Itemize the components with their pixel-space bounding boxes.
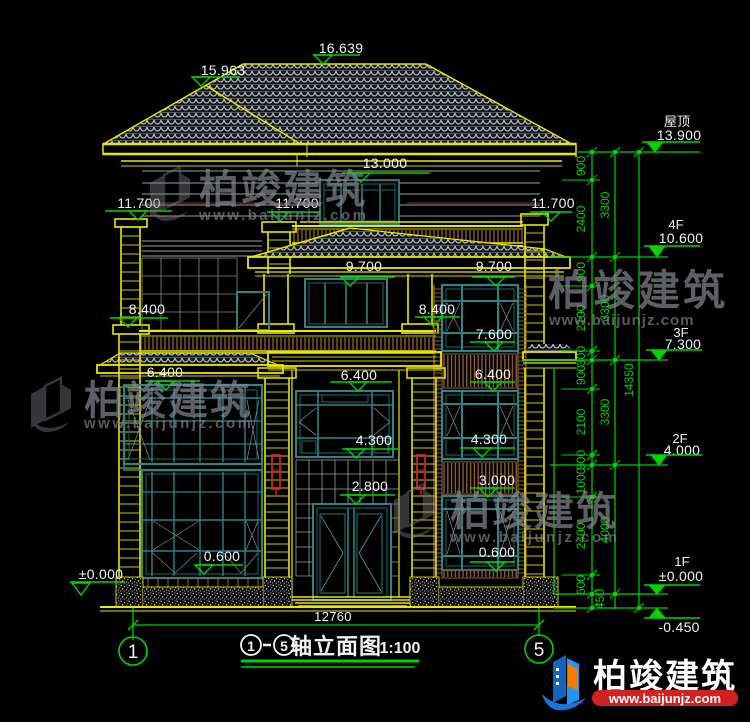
svg-text:15.963: 15.963 bbox=[201, 62, 246, 78]
svg-text:9.700: 9.700 bbox=[346, 258, 383, 274]
svg-text:16.639: 16.639 bbox=[319, 40, 364, 56]
svg-text:4.300: 4.300 bbox=[471, 431, 508, 447]
svg-text:3300: 3300 bbox=[598, 398, 612, 425]
svg-text:柏竣建筑: 柏竣建筑 bbox=[450, 490, 618, 534]
svg-text:柏竣建筑: 柏竣建筑 bbox=[199, 168, 367, 212]
svg-text:轴立面图: 轴立面图 bbox=[290, 634, 382, 659]
svg-text:1: 1 bbox=[128, 642, 139, 663]
svg-text:柏竣建筑: 柏竣建筑 bbox=[548, 267, 728, 314]
svg-text:6.400: 6.400 bbox=[341, 367, 378, 383]
svg-text:450: 450 bbox=[593, 589, 607, 609]
svg-text:3300: 3300 bbox=[598, 191, 612, 218]
svg-text:13.000: 13.000 bbox=[363, 155, 408, 171]
svg-text:6.400: 6.400 bbox=[475, 366, 512, 382]
svg-text:±0.000: ±0.000 bbox=[659, 568, 704, 584]
svg-text:www.baijunjz.com: www.baijunjz.com bbox=[83, 415, 253, 432]
svg-text:10.600: 10.600 bbox=[659, 230, 704, 246]
svg-text:5: 5 bbox=[280, 638, 288, 654]
svg-text:www.baijunjz.com: www.baijunjz.com bbox=[449, 529, 619, 546]
svg-text:13.900: 13.900 bbox=[657, 127, 702, 143]
svg-text:3.000: 3.000 bbox=[479, 472, 516, 488]
svg-text:300: 300 bbox=[574, 346, 588, 366]
svg-text:900: 900 bbox=[574, 156, 588, 176]
svg-text:0.600: 0.600 bbox=[204, 548, 241, 564]
svg-text:www.baijunjz.com: www.baijunjz.com bbox=[608, 691, 721, 706]
svg-text:2400: 2400 bbox=[574, 205, 588, 232]
svg-text:7.600: 7.600 bbox=[476, 326, 513, 342]
svg-text:4.300: 4.300 bbox=[356, 432, 393, 448]
svg-text:1F: 1F bbox=[674, 554, 689, 569]
svg-text:11.700: 11.700 bbox=[531, 195, 575, 211]
svg-text:8.400: 8.400 bbox=[419, 301, 456, 317]
svg-text:-0.450: -0.450 bbox=[658, 619, 700, 635]
svg-text:8.400: 8.400 bbox=[129, 301, 166, 317]
svg-text:www.baijunjz.com: www.baijunjz.com bbox=[198, 207, 368, 224]
svg-text:2100: 2100 bbox=[574, 408, 588, 435]
svg-text:±0.000: ±0.000 bbox=[79, 566, 124, 582]
svg-text:12760: 12760 bbox=[314, 609, 352, 624]
svg-text:600: 600 bbox=[574, 575, 588, 595]
svg-text:2.800: 2.800 bbox=[352, 478, 389, 494]
svg-text:www.baijunjz.com: www.baijunjz.com bbox=[548, 312, 694, 329]
svg-text:6.400: 6.400 bbox=[147, 364, 184, 380]
svg-text:9.700: 9.700 bbox=[476, 258, 513, 274]
svg-text:1: 1 bbox=[247, 638, 255, 654]
svg-text:5: 5 bbox=[534, 640, 545, 661]
svg-text:0.600: 0.600 bbox=[479, 544, 516, 560]
svg-text:900: 900 bbox=[574, 365, 588, 385]
svg-text:1:100: 1:100 bbox=[380, 640, 421, 657]
svg-text:300: 300 bbox=[574, 450, 588, 470]
svg-text:14350: 14350 bbox=[622, 363, 636, 397]
